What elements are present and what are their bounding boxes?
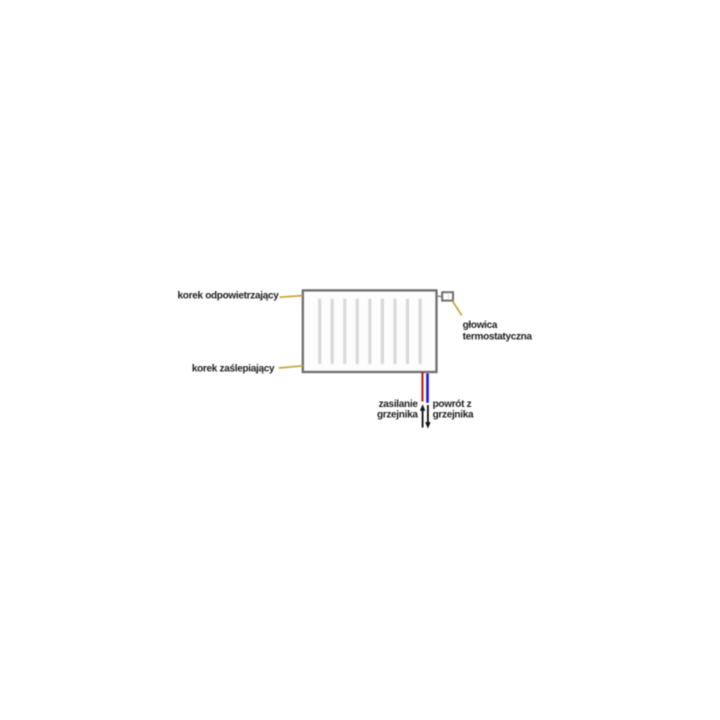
svg-text:zasilanie: zasilanie — [379, 399, 419, 410]
svg-text:korek zaślepiający: korek zaślepiający — [192, 363, 275, 374]
svg-text:głowica: głowica — [463, 320, 498, 331]
svg-text:termostatyczna: termostatyczna — [463, 331, 533, 342]
svg-text:grzejnika: grzejnika — [433, 410, 474, 421]
svg-text:powrót z: powrót z — [433, 399, 472, 410]
svg-text:grzejnika: grzejnika — [377, 410, 418, 421]
svg-text:korek odpowietrzający: korek odpowietrzający — [178, 290, 280, 301]
